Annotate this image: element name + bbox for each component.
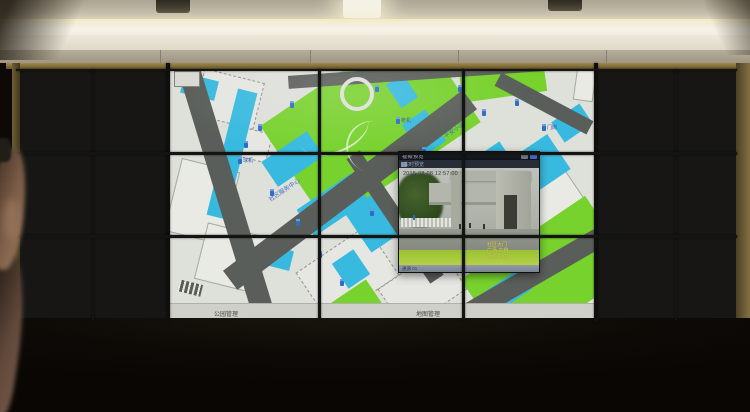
- video-timestamp: 2015-08-08 12:57:00: [403, 171, 458, 177]
- map-scale-infobox: [174, 71, 200, 87]
- control-room-photo: 08-08 12:5708-08 12:5708-08 12:5708-08 1…: [0, 0, 750, 412]
- ceiling-vent: [156, 0, 190, 13]
- held-object: [0, 138, 11, 162]
- popup-status-text: 通道 01: [402, 266, 417, 272]
- video-osd-text: 社区大门广场 东侧摄像机 01: [487, 242, 509, 260]
- map-area-label: 社区服务中心: [267, 176, 302, 204]
- video-person: [483, 224, 485, 229]
- video-fence: [401, 218, 451, 227]
- dark-wall-below: [0, 318, 750, 412]
- panel-seam: [606, 50, 607, 63]
- shadow: [705, 0, 750, 55]
- popup-toolbar-label: 实时预览: [404, 161, 424, 168]
- monitor-bezel: [16, 152, 737, 155]
- videowall-frame-right: [736, 63, 750, 322]
- monitor-bezel: [462, 69, 465, 320]
- video-gate-pillar: [451, 171, 461, 231]
- status-left-label: 公园管理: [214, 309, 238, 318]
- video-background-building: [429, 183, 501, 205]
- cove-light-strip: [0, 19, 750, 36]
- video-road: [399, 229, 539, 252]
- video-person: [459, 224, 461, 229]
- wall-panel-band: [0, 50, 750, 63]
- ceiling-light-panel: [343, 0, 381, 18]
- hand-highlight: [4, 198, 19, 240]
- panel-seam: [458, 50, 459, 63]
- monitor-bezel: [16, 235, 737, 238]
- status-right-label: 地图管理: [416, 309, 440, 318]
- monitor-bezel: [675, 69, 677, 320]
- popup-status-bar: 通道 01: [399, 265, 539, 272]
- monitor-bezel: [166, 63, 170, 322]
- popup-toolbar: 实时预览: [399, 160, 539, 168]
- video-person: [413, 215, 415, 220]
- right-camera-wall: 2015-08-08 12:5708-08 12:5708-08 12:5708…: [598, 69, 736, 320]
- panel-seam: [310, 50, 311, 63]
- shadow: [0, 0, 95, 60]
- monitor-bezel: [318, 69, 321, 320]
- monitor-bezel: [594, 63, 598, 322]
- osd-line: 摄像机 01: [487, 254, 509, 260]
- live-video-feed[interactable]: 2015-08-08 12:57:00 社区大门广场 东侧摄像机 01: [399, 168, 539, 267]
- video-person: [469, 223, 471, 228]
- monitor-bezel: [92, 69, 94, 320]
- ceiling-vent: [548, 0, 582, 11]
- video-preview-window[interactable]: 视频预览 实时预览 2015-08-08 12:57:00: [398, 151, 540, 273]
- panel-seam: [160, 50, 161, 63]
- ceiling-fascia: [0, 35, 750, 51]
- monitor-bezel: [16, 69, 737, 71]
